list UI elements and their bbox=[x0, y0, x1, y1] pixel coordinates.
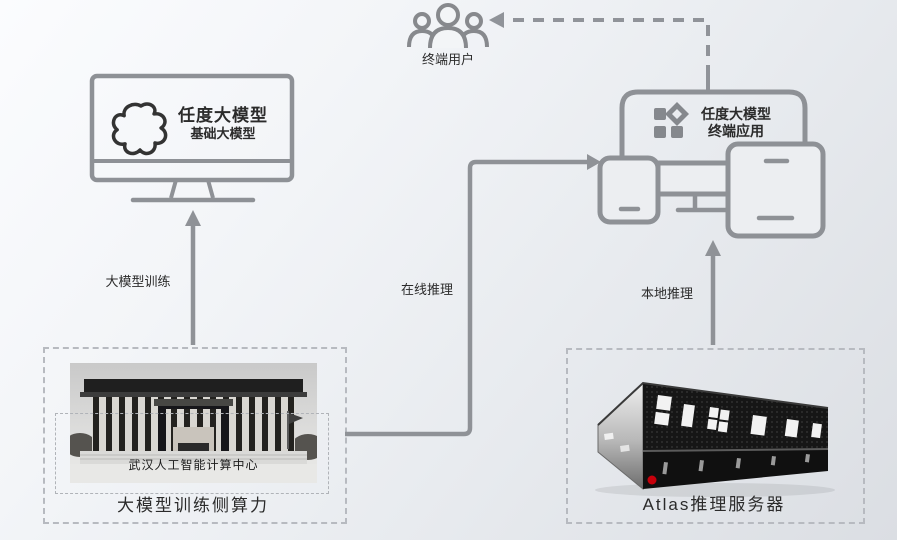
datacenter-photo-caption: 武汉人工智能计算中心 bbox=[70, 458, 317, 473]
training-power-label: 大模型训练侧算力 bbox=[68, 495, 318, 516]
base-model-title: 任度大模型 bbox=[162, 105, 284, 126]
terminal-app-title: 任度大模型 bbox=[686, 106, 786, 124]
huawei-logo-icon bbox=[648, 476, 657, 485]
app-grid-icon bbox=[654, 102, 689, 138]
tablet-icon bbox=[728, 144, 823, 236]
blob-logo-icon bbox=[113, 104, 165, 153]
edge-training-label: 大模型训练 bbox=[88, 274, 188, 290]
terminal-app-subtitle: 终端应用 bbox=[686, 123, 786, 141]
phone-icon bbox=[600, 158, 658, 222]
desktop-icon bbox=[658, 163, 728, 210]
edge-local-inference-label: 本地推理 bbox=[617, 286, 717, 302]
end-user-label: 终端用户 bbox=[398, 52, 498, 68]
architecture-diagram: 终端用户 任度大模型 基础大模型 任度大模型 终端应用 大模型训练 在线推理 本… bbox=[0, 0, 897, 540]
atlas-server-illustration bbox=[595, 383, 835, 497]
edge-online-inference-label: 在线推理 bbox=[377, 282, 477, 298]
users-icon bbox=[409, 5, 487, 48]
edge-app-to-user-dashed-arrow bbox=[489, 12, 708, 92]
atlas-server-label: Atlas推理服务器 bbox=[589, 494, 839, 515]
base-model-subtitle: 基础大模型 bbox=[162, 126, 284, 142]
